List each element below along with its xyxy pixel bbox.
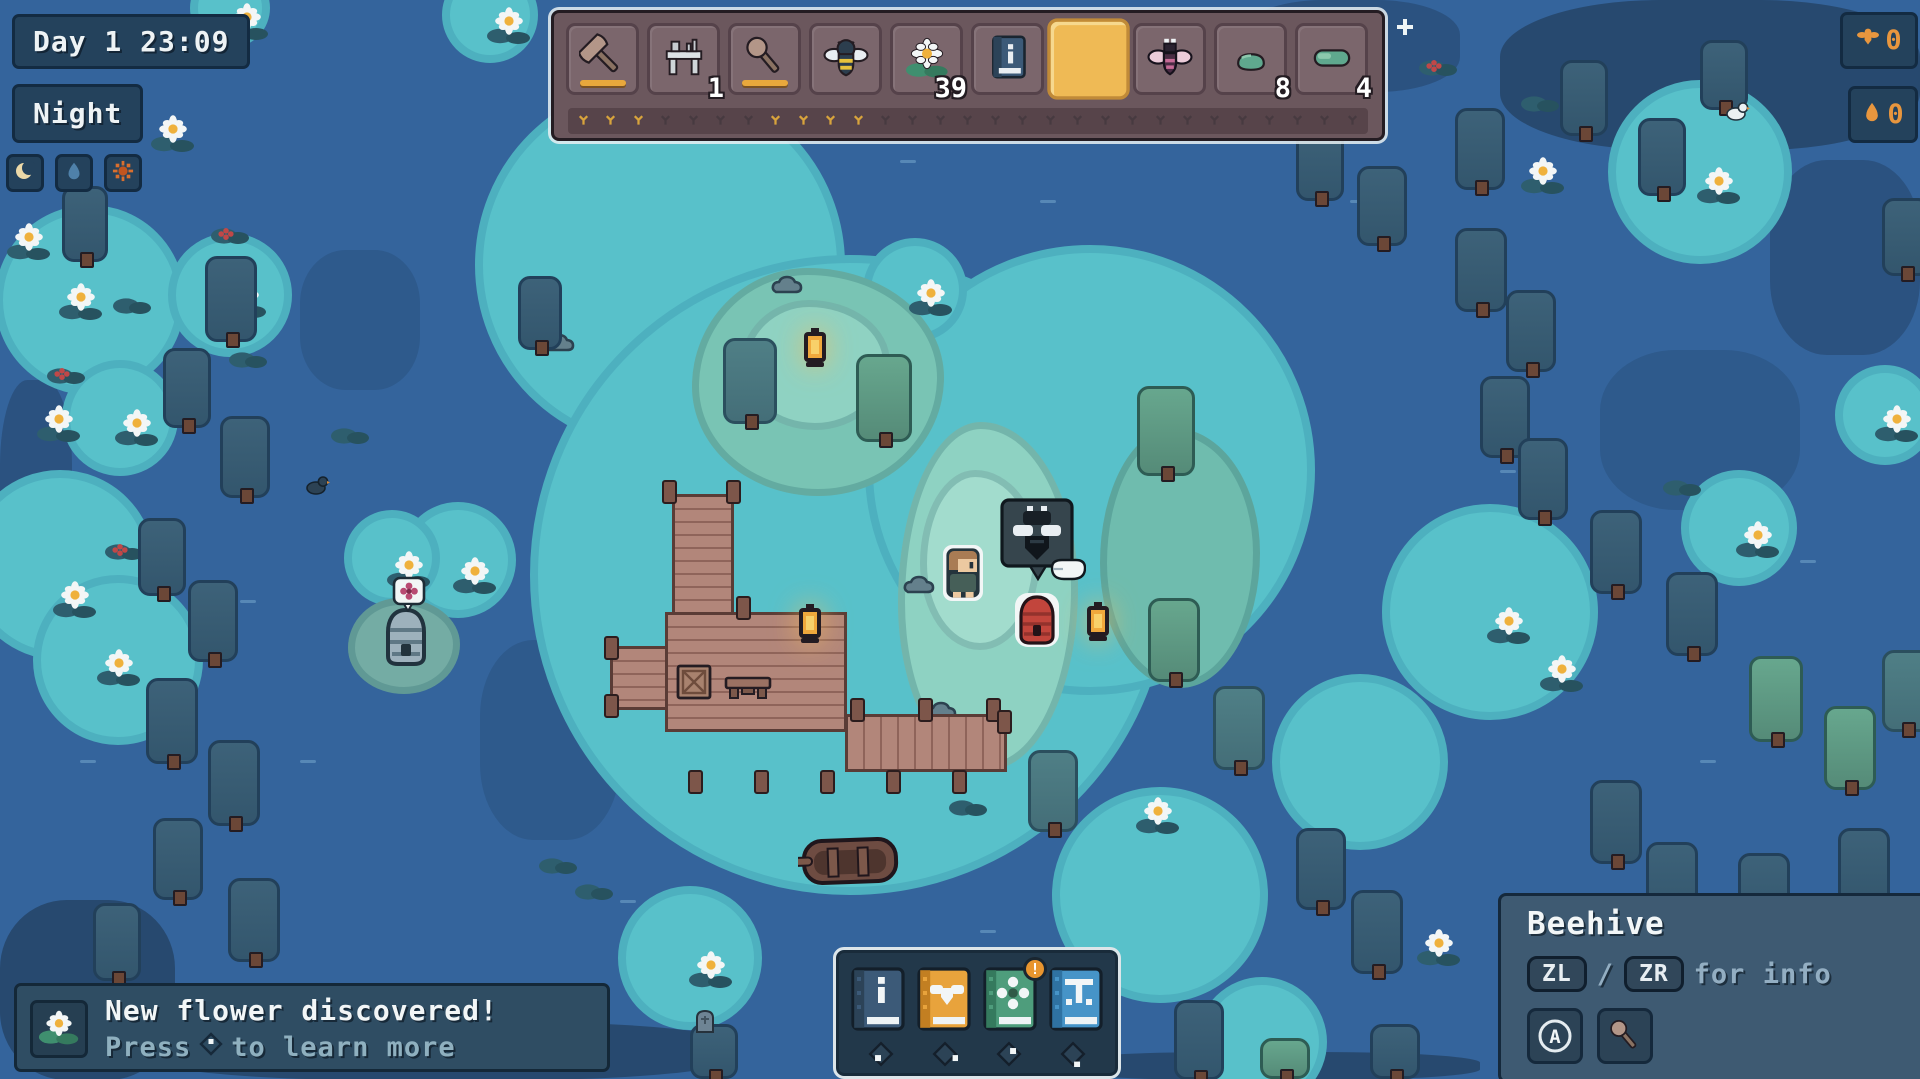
dpad-any-icon bbox=[199, 1032, 223, 1063]
honey-counter: 0 bbox=[1848, 86, 1918, 143]
waterlily bbox=[486, 6, 532, 44]
hotbar-slot-3-hammer[interactable] bbox=[728, 23, 801, 95]
lily-pad bbox=[330, 424, 370, 446]
tree bbox=[208, 740, 260, 826]
progress-marker bbox=[1070, 111, 1085, 131]
tree bbox=[1518, 438, 1568, 520]
tooltip-action-row: A bbox=[1527, 1008, 1653, 1064]
wave-dash bbox=[80, 760, 96, 763]
durability-bar bbox=[742, 80, 788, 86]
slot-count: 8 bbox=[1275, 73, 1291, 104]
tree bbox=[1560, 60, 1608, 136]
progress-marker-gold bbox=[631, 111, 646, 131]
tree bbox=[518, 276, 562, 350]
progress-marker bbox=[905, 111, 920, 131]
waterlily bbox=[1539, 654, 1585, 692]
axe-icon bbox=[579, 33, 627, 85]
wave-dash bbox=[980, 930, 996, 933]
durability-bar bbox=[580, 80, 626, 86]
progress-marker-gold bbox=[768, 111, 783, 131]
tooltip-hint: for info bbox=[1694, 959, 1832, 990]
tree bbox=[93, 903, 141, 981]
tree bbox=[1260, 1038, 1310, 1079]
dpad-down-icon bbox=[1060, 1041, 1086, 1071]
progress-marker-gold bbox=[576, 111, 591, 131]
progress-marker bbox=[1290, 111, 1305, 131]
lily-pad bbox=[538, 854, 578, 876]
hotbar-slot-4-bee[interactable] bbox=[809, 23, 882, 95]
waterlily bbox=[6, 222, 52, 260]
waterlily bbox=[688, 950, 734, 988]
waterlily bbox=[1135, 796, 1181, 834]
progress-marker bbox=[933, 111, 948, 131]
pier-book[interactable] bbox=[1049, 967, 1103, 1035]
fence-post bbox=[997, 710, 1012, 734]
waterlily bbox=[1735, 520, 1781, 558]
wave-dash bbox=[300, 760, 316, 763]
tree bbox=[188, 580, 238, 662]
tree bbox=[153, 818, 203, 900]
wave-dash bbox=[1700, 760, 1716, 763]
zr-key: ZR bbox=[1624, 956, 1684, 992]
fence-post bbox=[918, 698, 933, 722]
lily-pad bbox=[1520, 92, 1560, 114]
glow-circle bbox=[1272, 674, 1448, 850]
dpad-left-icon bbox=[868, 1041, 894, 1071]
progress-marker bbox=[988, 111, 1003, 131]
bee-currency-icon bbox=[1856, 25, 1880, 56]
fence-post bbox=[952, 770, 967, 794]
workbench-icon bbox=[661, 34, 707, 84]
progress-marker bbox=[658, 111, 673, 131]
tree bbox=[1749, 656, 1803, 742]
tree bbox=[1370, 1024, 1420, 1079]
fence-post bbox=[726, 480, 741, 504]
tree bbox=[220, 416, 270, 498]
fence-post bbox=[886, 770, 901, 794]
bench bbox=[724, 674, 772, 702]
progress-marker bbox=[960, 111, 975, 131]
hotbar-progress-markers bbox=[568, 108, 1368, 134]
honey-drop-icon bbox=[1862, 99, 1882, 130]
stone-skep bbox=[380, 606, 432, 668]
slot-count: 39 bbox=[934, 73, 967, 104]
hammer-icon bbox=[741, 33, 789, 85]
progress-marker-gold bbox=[823, 111, 838, 131]
waterlily bbox=[1520, 156, 1566, 194]
wave-dash bbox=[900, 160, 916, 163]
hotbar-slot-8-moth[interactable] bbox=[1133, 23, 1206, 95]
progress-marker bbox=[1125, 111, 1140, 131]
water-indicator bbox=[55, 154, 93, 192]
player-character bbox=[942, 544, 984, 602]
tree bbox=[1351, 890, 1403, 974]
hotbar-slot-10-log[interactable]: 4 bbox=[1295, 23, 1368, 95]
lily-pad bbox=[1418, 56, 1458, 78]
waterlily bbox=[52, 580, 98, 618]
lily-pad bbox=[574, 880, 614, 902]
dock-plank bbox=[845, 714, 1007, 772]
fence-post bbox=[604, 636, 619, 660]
wave-dash bbox=[1500, 470, 1516, 473]
tree bbox=[1590, 780, 1642, 864]
progress-marker bbox=[1015, 111, 1030, 131]
books-panel: ! bbox=[836, 950, 1118, 1076]
a-button: A bbox=[1527, 1008, 1583, 1064]
bird bbox=[304, 474, 330, 496]
key-separator: / bbox=[1597, 959, 1614, 990]
water-drop-icon bbox=[63, 160, 85, 186]
tree bbox=[1148, 598, 1200, 682]
water-patch bbox=[300, 250, 420, 390]
notification-iconbox bbox=[30, 1000, 88, 1058]
waterlily bbox=[58, 282, 104, 320]
zl-key: ZL bbox=[1527, 956, 1587, 992]
progress-marker bbox=[1317, 111, 1332, 131]
fence-post bbox=[736, 596, 751, 620]
waterlily bbox=[908, 278, 954, 316]
wave-dash bbox=[1040, 200, 1056, 203]
lily-pad bbox=[210, 224, 250, 246]
tree bbox=[1455, 108, 1505, 190]
hotbar-slots: 13984 bbox=[566, 23, 1368, 95]
rock bbox=[768, 270, 808, 298]
log-icon bbox=[1309, 37, 1355, 81]
notification-subtitle: Press to learn more bbox=[105, 1032, 456, 1063]
tree bbox=[228, 878, 280, 962]
progress-marker-gold bbox=[796, 111, 811, 131]
progress-marker bbox=[713, 111, 728, 131]
clay-icon bbox=[1229, 35, 1273, 83]
tree bbox=[1137, 386, 1195, 476]
progress-marker bbox=[1098, 111, 1113, 131]
hotbar-slot-5-waterlily[interactable]: 39 bbox=[890, 23, 963, 95]
crate bbox=[676, 662, 712, 702]
fence-post bbox=[688, 770, 703, 794]
new-content-badge: ! bbox=[1023, 957, 1047, 981]
waterlily bbox=[36, 404, 82, 442]
lantern bbox=[800, 328, 830, 368]
books-row: ! bbox=[839, 967, 1115, 1035]
lily-pad bbox=[948, 796, 988, 818]
progress-marker bbox=[1043, 111, 1058, 131]
lily-pad bbox=[46, 364, 86, 386]
wave-dash bbox=[240, 600, 256, 603]
tree bbox=[1824, 706, 1876, 790]
honeycomb-counter: 0 bbox=[1840, 12, 1918, 69]
moth-icon bbox=[1147, 34, 1193, 84]
fence-post bbox=[850, 698, 865, 722]
tree bbox=[1506, 290, 1556, 372]
waterlily bbox=[1696, 166, 1742, 204]
tree bbox=[163, 348, 211, 428]
tree bbox=[205, 256, 257, 342]
progress-marker bbox=[1180, 111, 1195, 131]
books-dpad-row bbox=[839, 1041, 1115, 1071]
tree bbox=[1882, 650, 1920, 732]
lily-pad bbox=[1662, 476, 1702, 498]
target-tooltip: Beehive ZL / ZR for info A bbox=[1498, 893, 1920, 1079]
waterlily-icon bbox=[38, 1009, 80, 1049]
progress-marker bbox=[1207, 111, 1222, 131]
fence-post bbox=[662, 480, 677, 504]
dock-plank bbox=[672, 494, 734, 620]
waterlily bbox=[114, 408, 160, 446]
tree bbox=[1028, 750, 1078, 832]
hotbar-slot-7-empty[interactable] bbox=[1047, 18, 1129, 99]
progress-marker bbox=[1235, 111, 1250, 131]
hotbar: 13984 bbox=[551, 10, 1385, 141]
progress-marker bbox=[1262, 111, 1277, 131]
tree bbox=[1213, 686, 1265, 770]
lantern bbox=[1083, 602, 1113, 642]
gravestone bbox=[694, 1008, 716, 1034]
beehive[interactable] bbox=[1014, 592, 1060, 648]
tree bbox=[1296, 828, 1346, 910]
tree bbox=[138, 518, 186, 596]
slot-count: 1 bbox=[708, 73, 724, 104]
tree bbox=[1666, 572, 1718, 656]
progress-marker-gold bbox=[603, 111, 618, 131]
tree bbox=[1455, 228, 1507, 312]
moon-icon bbox=[13, 159, 37, 187]
honeycomb-count: 0 bbox=[1885, 25, 1901, 56]
notification-title: New flower discovered! bbox=[105, 994, 498, 1027]
tooltip-title: Beehive bbox=[1527, 906, 1665, 942]
hammer-action-icon bbox=[1597, 1008, 1653, 1064]
help-book[interactable] bbox=[851, 967, 905, 1035]
tooltip-info-row: ZL / ZR for info bbox=[1527, 956, 1832, 992]
lily-pad bbox=[228, 348, 268, 370]
info-book-icon bbox=[986, 33, 1030, 85]
waterlily bbox=[150, 114, 196, 152]
waterlily bbox=[96, 648, 142, 686]
waterlily bbox=[1416, 928, 1462, 966]
svg-text:A: A bbox=[1549, 1026, 1561, 1048]
wooden-boat bbox=[798, 832, 902, 890]
hotbar-slot-6-info-book[interactable] bbox=[971, 23, 1044, 95]
tree bbox=[1882, 198, 1920, 276]
dpad-right-icon bbox=[932, 1041, 958, 1071]
pointing-hand bbox=[1048, 552, 1086, 582]
progress-marker-gold bbox=[851, 111, 866, 131]
lantern bbox=[795, 604, 825, 644]
fence-post bbox=[820, 770, 835, 794]
progress-marker bbox=[878, 111, 893, 131]
slot-count: 4 bbox=[1356, 73, 1372, 104]
bee-icon bbox=[823, 34, 869, 84]
tree bbox=[1174, 1000, 1224, 1079]
lily-pad bbox=[112, 294, 152, 316]
hotbar-slot-9-clay[interactable]: 8 bbox=[1214, 23, 1287, 95]
sun-icon bbox=[112, 160, 134, 186]
phase-label: Night bbox=[33, 97, 122, 130]
day-clock-label: Day 1 23:09 bbox=[33, 25, 229, 58]
moon-indicator bbox=[6, 154, 44, 192]
press-label: Press bbox=[105, 1032, 191, 1063]
wave-dash bbox=[620, 900, 636, 903]
phase-panel: Night bbox=[12, 84, 143, 143]
white-bird bbox=[1724, 100, 1750, 122]
bee-book[interactable] bbox=[917, 967, 971, 1035]
wave-dash bbox=[1800, 560, 1816, 563]
tree bbox=[62, 186, 108, 262]
progress-marker bbox=[686, 111, 701, 131]
hotbar-slot-1-axe[interactable] bbox=[566, 23, 639, 95]
sun-indicator bbox=[104, 154, 142, 192]
sparkle bbox=[1396, 18, 1414, 36]
tree bbox=[856, 354, 912, 442]
dpad-up-icon bbox=[996, 1041, 1022, 1071]
rock bbox=[900, 570, 940, 598]
tree bbox=[723, 338, 777, 424]
progress-marker bbox=[741, 111, 756, 131]
progress-marker bbox=[1153, 111, 1168, 131]
waterlily bbox=[1874, 404, 1920, 442]
notification-toast: New flower discovered! Press to learn mo… bbox=[14, 983, 610, 1072]
hotbar-slot-2-workbench[interactable]: 1 bbox=[647, 23, 720, 95]
waterlily bbox=[1486, 606, 1532, 644]
tree bbox=[1357, 166, 1407, 246]
tree bbox=[146, 678, 198, 764]
flower-speech-bubble bbox=[392, 576, 426, 612]
flower-book[interactable]: ! bbox=[983, 967, 1037, 1035]
more-label: to learn more bbox=[231, 1032, 455, 1063]
fence-post bbox=[754, 770, 769, 794]
honey-count: 0 bbox=[1887, 99, 1903, 130]
progress-marker bbox=[1345, 111, 1360, 131]
tree bbox=[1590, 510, 1642, 594]
game-screen: Day 1 23:09 Night 13984 0 0 bbox=[0, 0, 1920, 1079]
tree bbox=[1638, 118, 1686, 196]
waterlily bbox=[452, 556, 498, 594]
day-clock-panel: Day 1 23:09 bbox=[12, 14, 250, 69]
fence-post bbox=[604, 694, 619, 718]
